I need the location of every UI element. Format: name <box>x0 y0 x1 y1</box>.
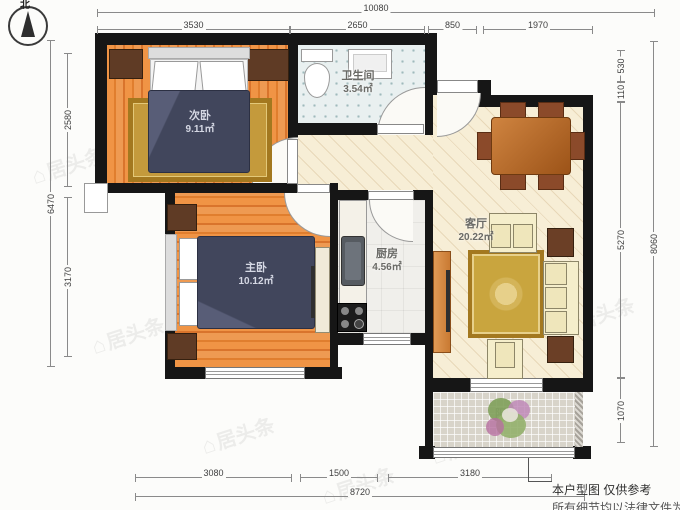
dining-chair <box>500 102 526 118</box>
wall <box>95 33 107 205</box>
watermark: ⌂居头条 <box>87 309 168 360</box>
nightstand <box>167 333 197 360</box>
utility-box <box>84 183 108 213</box>
wall-corner-block <box>573 446 591 459</box>
dim-left-segment: 3170 <box>67 197 68 357</box>
bed-headboard <box>148 47 250 59</box>
toilet-tank <box>301 49 333 62</box>
sofa-cushion <box>545 263 567 285</box>
dining-chair <box>538 102 564 118</box>
wall <box>425 378 470 392</box>
dim-right-segment: 530 <box>620 50 621 82</box>
dim-top-segment: 3530 <box>97 29 290 30</box>
watermark: ⌂居头条 <box>317 459 398 510</box>
dim-top-segment: 2650 <box>290 29 425 30</box>
dim-bottom-total: 8720 <box>135 496 585 497</box>
tv-console <box>315 247 330 333</box>
wall <box>543 378 593 392</box>
sofa-cushion <box>545 311 567 333</box>
floor-plan: ⌂居头条 ⌂居头条 ⌂居头条 ⌂居头条 ⌂居头条 ⌂居头条 ⌂居头条 ⌂居头条 … <box>0 0 680 510</box>
wall <box>425 190 433 392</box>
stove-burner <box>354 319 364 329</box>
plant-flower <box>486 418 504 436</box>
wall <box>95 183 298 193</box>
compass-north-label: 北 <box>20 0 30 11</box>
stove-burner <box>341 320 349 328</box>
balcony-window <box>433 447 575 458</box>
door-leaf-kitchen <box>368 191 414 200</box>
wall <box>95 33 437 45</box>
wall <box>330 183 338 379</box>
dim-left-segment: 2580 <box>67 53 68 187</box>
dim-right-total: 8060 <box>653 41 654 447</box>
balcony-side-rail <box>575 392 583 447</box>
room-label-master-bedroom: 主卧 10.12㎡ <box>216 262 296 288</box>
dining-chair <box>500 174 526 190</box>
plant-pot <box>502 408 518 422</box>
tv-screen <box>446 270 450 332</box>
dim-right-segment: 1070 <box>620 378 621 443</box>
door-leaf-bathroom <box>377 124 424 134</box>
sofa-cushion <box>545 287 567 309</box>
disclaimer-line2: 所有细节均以法律文件为准 <box>552 499 680 510</box>
stove-burner <box>355 307 363 315</box>
side-table <box>547 336 574 363</box>
dim-top-segment: 1970 <box>483 29 593 30</box>
nightstand <box>247 49 289 81</box>
leader-line <box>528 481 552 482</box>
dim-top-segment: 850 <box>428 29 477 30</box>
pillow <box>199 61 246 91</box>
door-leaf-master-bedroom <box>297 184 330 193</box>
tv-screen <box>311 266 315 318</box>
dining-chair <box>538 174 564 190</box>
dim-right-segment: 110 <box>620 82 621 102</box>
window <box>470 378 543 392</box>
wall <box>288 123 377 135</box>
dim-bottom-segment: 1500 <box>300 477 378 478</box>
door-leaf-entry <box>437 80 478 93</box>
side-table <box>547 228 574 257</box>
stove-burner <box>341 307 349 315</box>
dining-table <box>491 117 571 175</box>
compass-icon <box>8 6 48 46</box>
window <box>205 367 305 379</box>
nightstand <box>109 49 143 79</box>
room-label-bedroom2: 次卧 9.11㎡ <box>160 110 240 136</box>
dim-top-total: 10080 <box>97 12 655 13</box>
watermark: ⌂居头条 <box>197 409 278 460</box>
room-label-living-room: 客厅 20.22㎡ <box>441 218 511 244</box>
window <box>363 333 411 345</box>
dim-right-segment: 5270 <box>620 102 621 378</box>
disclaimer-line1: 本户型图 仅供参考 <box>552 481 651 498</box>
bed-headboard <box>165 234 177 331</box>
nightstand <box>167 204 197 231</box>
room-label-kitchen: 厨房 4.56㎡ <box>352 248 422 274</box>
leader-line <box>528 458 529 482</box>
wall <box>338 190 368 200</box>
sofa-cushion <box>513 224 533 248</box>
armchair-cushion <box>495 342 515 368</box>
pillow <box>151 61 198 91</box>
wall <box>425 33 437 95</box>
dim-bottom-segment: 3080 <box>135 477 292 478</box>
north-arrow-icon <box>21 11 35 37</box>
dim-left-total: 6470 <box>50 40 51 367</box>
wall <box>425 392 433 447</box>
rug <box>468 250 544 338</box>
room-label-bathroom: 卫生间 3.54㎡ <box>318 70 398 96</box>
wall <box>425 95 433 135</box>
hallway-floor <box>298 135 433 190</box>
dining-chair <box>569 132 585 160</box>
door-leaf-bedroom2 <box>287 139 298 184</box>
